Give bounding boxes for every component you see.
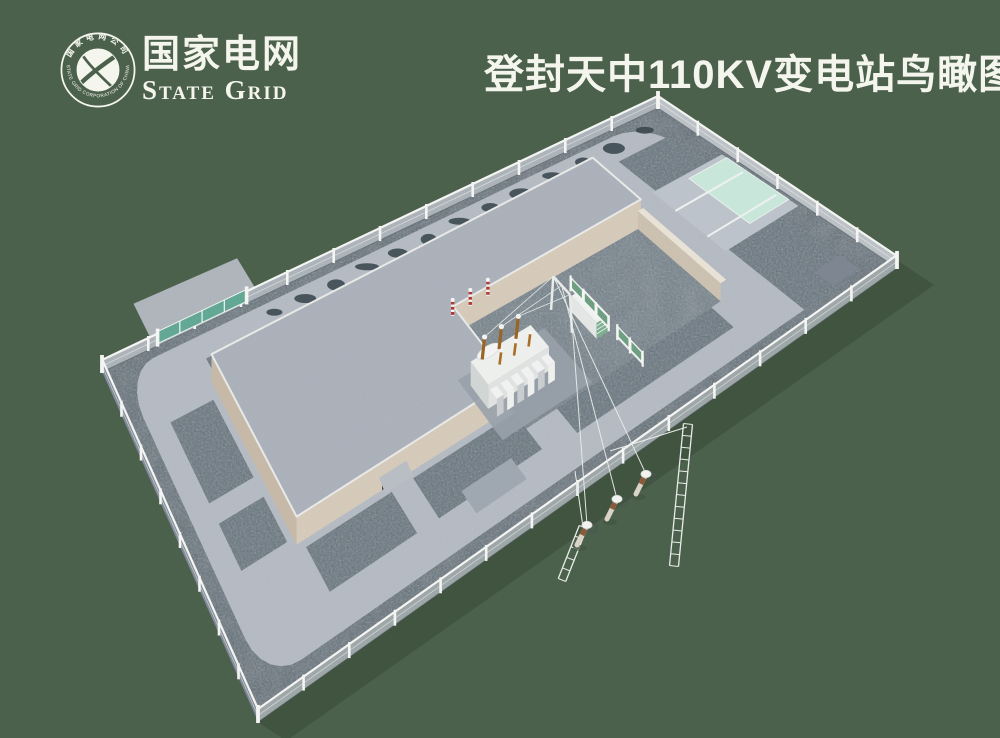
- substation-render: [0, 0, 1000, 738]
- slide: 国家电网公司 STATE GRID CORPORATION OF CHINA 国…: [0, 0, 1000, 738]
